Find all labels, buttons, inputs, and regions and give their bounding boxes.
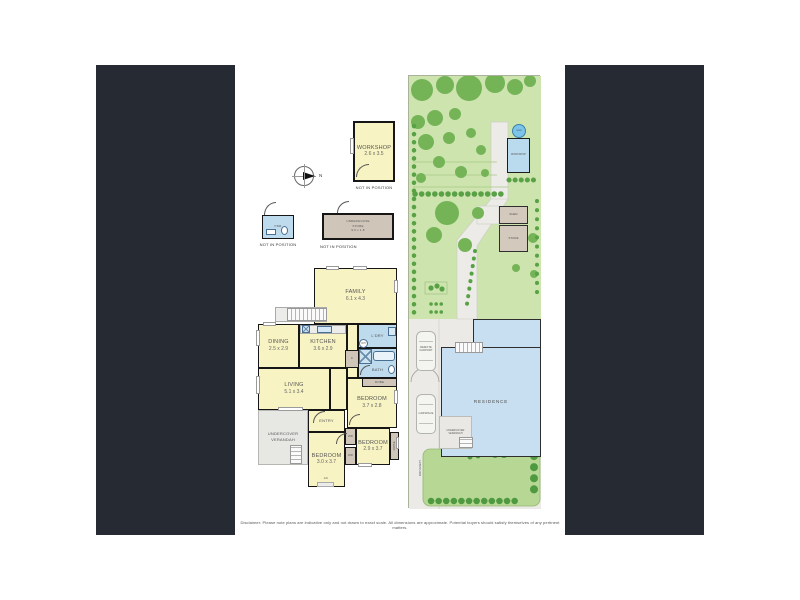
verandah-steps — [290, 445, 302, 464]
workshop-dims: 2.6 x 3.5 — [364, 152, 383, 158]
ac-label: AC — [316, 476, 336, 480]
wr1-label: WR — [348, 435, 353, 438]
right-dark-panel — [565, 65, 704, 535]
wardrobe-2: WR — [345, 447, 356, 465]
bath-toilet-icon — [388, 365, 395, 374]
living-label: LIVING — [284, 382, 303, 388]
north-arrow-icon — [303, 172, 315, 180]
window — [353, 266, 367, 270]
site-plan: TANK WORKSHOP SHED STORE RESIDENCE UNDER… — [408, 75, 540, 508]
detached-underhouse-store: UNDERHOUSE STORE 9.0 x 1.8 — [322, 213, 394, 240]
carspace-label: CARSPACE — [419, 412, 434, 415]
store-note: NOT IN POSITION — [320, 244, 380, 249]
cupboard: C — [345, 350, 359, 368]
window — [263, 322, 276, 326]
disclaimer-text: Disclaimer: Please note plans are indica… — [240, 520, 560, 530]
lawn — [423, 449, 540, 506]
living-dims: 5.1 x 3.4 — [284, 390, 303, 396]
cooktop-icon — [302, 325, 310, 333]
bedroom1-dims: 3.7 x 2.8 — [362, 404, 381, 410]
site-workshop: WORKSHOP — [507, 138, 530, 173]
north-compass: N — [294, 166, 314, 186]
window — [358, 463, 372, 467]
workshop-window — [350, 138, 354, 154]
room-living: LIVING 5.1 x 3.4 — [258, 368, 330, 410]
left-dark-panel — [96, 65, 235, 535]
tank-label: TANK — [516, 130, 522, 133]
dining-dims: 2.5 x 2.9 — [269, 347, 288, 353]
robe-main-label: ROBE — [375, 381, 384, 384]
site-shed-label: SHED — [509, 213, 517, 216]
shower-icon — [359, 349, 372, 364]
ac-unit-icon — [317, 482, 334, 487]
store-dims: 9.0 x 1.8 — [351, 229, 364, 232]
room-bedroom3: BEDROOM 2.9 x 3.7 — [356, 428, 390, 465]
hallway-2 — [330, 368, 347, 410]
robe-main: ROBE — [362, 378, 397, 387]
driveway-label: DRIVEWAY — [419, 460, 423, 476]
window — [278, 407, 303, 411]
detached-powder-room: PDR — [262, 215, 294, 239]
powder-note: NOT IN POSITION — [256, 242, 300, 247]
laundry-trough-icon — [388, 327, 396, 336]
dining-label: DINING — [268, 339, 288, 345]
workshop-note: NOT IN POSITION — [346, 185, 402, 190]
wr2-label: WR — [348, 454, 353, 457]
window — [394, 390, 398, 404]
window — [326, 266, 339, 270]
verandah-steps-site — [459, 437, 473, 448]
stairs — [287, 308, 327, 321]
cupboard-label: C — [351, 357, 353, 360]
site-verandah-line2: VERANDAH — [448, 433, 462, 436]
verandah-line2: VERANDAH — [271, 438, 295, 443]
north-label: N — [319, 173, 322, 178]
basin-icon — [266, 229, 276, 235]
driveway-label-box: DRIVEWAY — [417, 448, 425, 488]
floorplan-sheet: WORKSHOP 2.6 x 3.5 NOT IN POSITION N PDR… — [0, 0, 800, 600]
residence-steps — [455, 342, 483, 353]
kitchen-sink-icon — [317, 326, 332, 333]
bath-label: BATH — [372, 368, 383, 373]
family-label: FAMILY — [345, 289, 365, 295]
site-shed: SHED — [499, 206, 528, 224]
window — [394, 280, 398, 293]
window — [256, 376, 260, 394]
carspace-label-box: CARSPACE — [412, 410, 440, 418]
kitchen-label: KITCHEN — [310, 339, 336, 345]
powder-door-arc — [264, 202, 276, 215]
bedroom3-dims: 2.9 x 3.7 — [363, 447, 382, 453]
water-heater-label: WH — [361, 342, 366, 345]
carport-label-box: REMOTE CARPORT — [412, 342, 440, 356]
kitchen-dims: 3.6 x 2.9 — [313, 347, 332, 353]
carport-line2: CARPORT — [419, 349, 432, 352]
site-tank: TANK — [512, 124, 526, 138]
site-store: STORE — [499, 225, 528, 252]
bathtub-icon — [373, 351, 395, 361]
window — [396, 437, 399, 449]
laundry-label: L'DRY — [371, 334, 383, 339]
window — [256, 330, 260, 346]
store-door-arc — [337, 201, 349, 213]
room-dining: DINING 2.5 x 2.9 — [258, 324, 299, 368]
residence-label: RESIDENCE — [474, 399, 508, 404]
water-heater-icon: WH — [359, 339, 368, 348]
bedroom2-dims: 3.0 x 3.7 — [317, 460, 336, 466]
toilet-icon — [281, 226, 288, 235]
family-dims: 6.1 x 4.3 — [346, 297, 365, 303]
residence-upper — [473, 319, 541, 350]
site-workshop-label: WORKSHOP — [511, 154, 526, 157]
bedroom1-label: BEDROOM — [357, 396, 387, 402]
site-store-label: STORE — [508, 237, 518, 240]
